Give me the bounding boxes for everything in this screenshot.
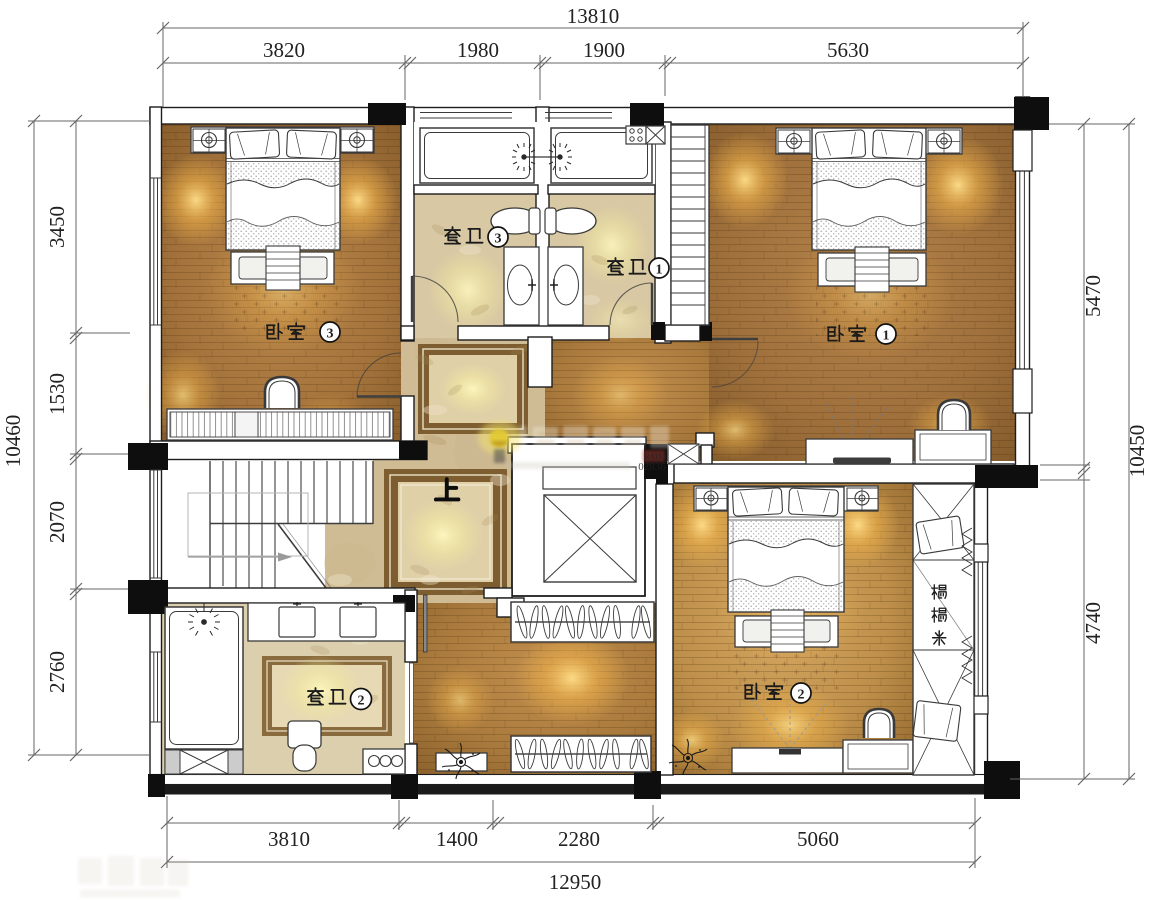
- svg-text:1980: 1980: [457, 38, 499, 62]
- svg-text:5470: 5470: [1081, 275, 1105, 317]
- svg-text:3: 3: [327, 327, 334, 342]
- svg-text:2070: 2070: [45, 501, 69, 543]
- svg-text:RATE: RATE: [645, 452, 664, 461]
- svg-text:3810: 3810: [268, 827, 310, 851]
- svg-text:10450: 10450: [1125, 425, 1149, 478]
- svg-text:1: 1: [883, 329, 890, 344]
- svg-text:10460: 10460: [1, 415, 25, 468]
- svg-text:4740: 4740: [1081, 602, 1105, 644]
- svg-text:5060: 5060: [797, 827, 839, 851]
- svg-text:1: 1: [656, 263, 663, 278]
- svg-text:1530: 1530: [45, 373, 69, 415]
- svg-text:5630: 5630: [827, 38, 869, 62]
- svg-text:3450: 3450: [45, 206, 69, 248]
- svg-text:2280: 2280: [558, 827, 600, 851]
- svg-text:2: 2: [798, 688, 805, 703]
- svg-text:2: 2: [358, 694, 365, 709]
- svg-text:2760: 2760: [45, 651, 69, 693]
- svg-text:3820: 3820: [263, 38, 305, 62]
- svg-text:1400: 1400: [436, 827, 478, 851]
- svg-text:13810: 13810: [567, 4, 620, 28]
- svg-text:3: 3: [495, 232, 502, 247]
- svg-text:12950: 12950: [549, 870, 602, 894]
- svg-text:1900: 1900: [583, 38, 625, 62]
- svg-text:02836: 02836: [638, 461, 666, 473]
